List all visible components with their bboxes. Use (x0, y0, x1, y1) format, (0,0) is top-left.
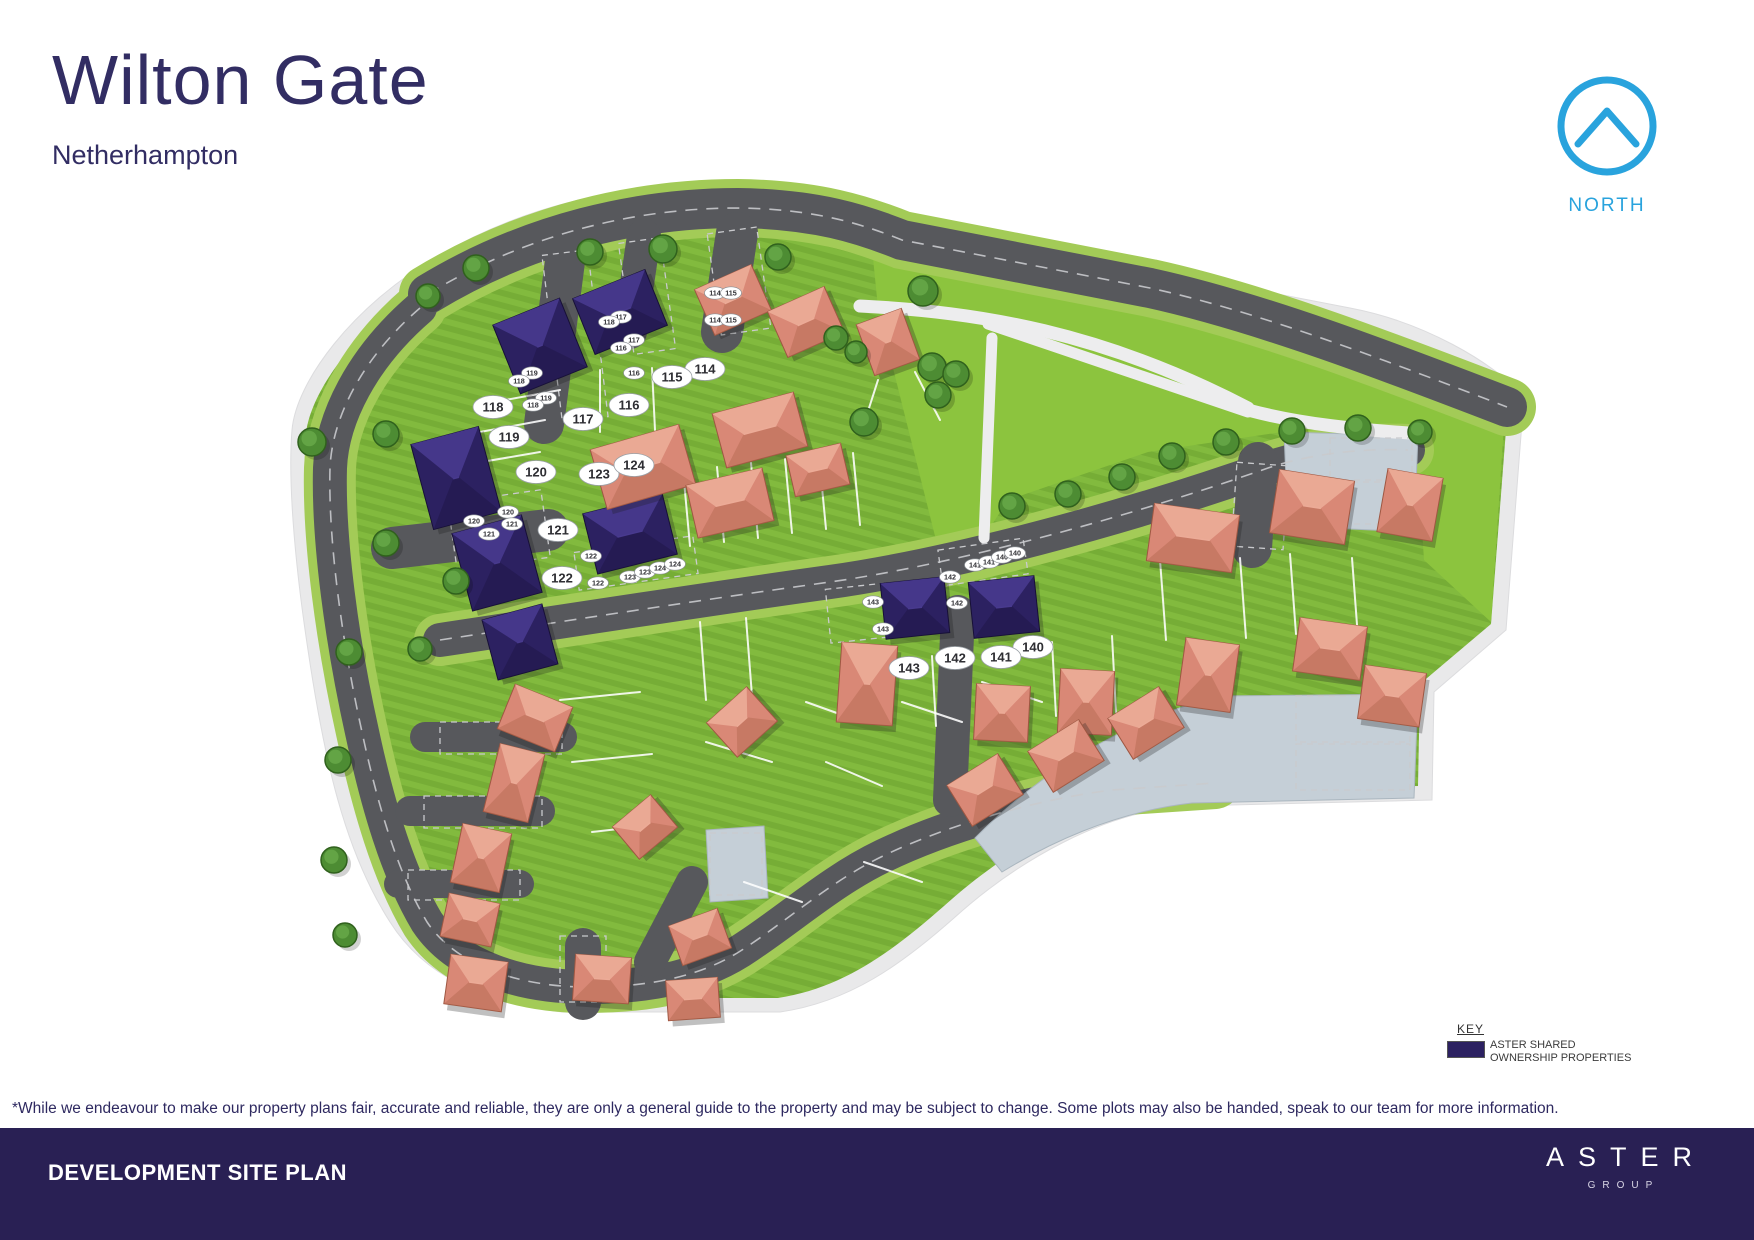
tree-canopy (768, 247, 782, 261)
bay-label-text: 119 (540, 394, 552, 403)
parking-bay-label: 118 (523, 399, 544, 411)
brand-name: ASTER (1533, 1142, 1709, 1173)
house-private (1176, 638, 1244, 719)
parking-bay-label: 143 (863, 596, 884, 608)
bay-label-text: 115 (725, 316, 737, 325)
tree-canopy (946, 364, 960, 378)
parking-bay-label: 140 (1005, 547, 1026, 559)
tree-canopy (1162, 446, 1176, 460)
tree-canopy (1112, 467, 1126, 481)
plot-label-text: 121 (547, 523, 569, 538)
block-paving-court (706, 826, 768, 902)
house-private (1357, 665, 1431, 734)
bay-label-text: 124 (669, 560, 681, 569)
house-roof (1407, 504, 1413, 505)
footer-title: DEVELOPMENT SITE PLAN (48, 1160, 347, 1186)
disclaimer-text: *While we endeavour to make our property… (12, 1100, 1752, 1118)
tree-canopy (411, 639, 424, 652)
tree-canopy (339, 642, 353, 656)
parking-bay-label: 121 (479, 528, 500, 540)
tree-icon (333, 923, 361, 951)
key-legend-line1: ASTER SHARED (1490, 1039, 1631, 1052)
tree-canopy (580, 242, 594, 256)
tree-canopy (912, 279, 929, 296)
plot-label: 120 (516, 461, 556, 484)
key-title: KEY (1457, 1022, 1747, 1036)
tree-canopy (328, 750, 342, 764)
parking-bay-label: 120 (464, 515, 485, 527)
parking-bay-label: 116 (611, 342, 632, 354)
header: Wilton Gate Netherhampton (52, 40, 429, 171)
aster-group-logo: ASTER GROUP (1533, 1142, 1709, 1191)
tree-canopy (1411, 422, 1424, 435)
plot-label-text: 118 (483, 400, 504, 415)
parking-bay-label: 122 (588, 577, 609, 589)
plot-label: 123 (579, 463, 619, 486)
house-private (973, 684, 1034, 749)
shared-ownership-swatch (1447, 1041, 1485, 1058)
parking-bay-label: 142 (940, 571, 961, 583)
plot-label-text: 117 (573, 412, 594, 427)
bay-label-text: 119 (526, 369, 538, 378)
tree-canopy (1348, 418, 1362, 432)
bay-label-text: 143 (867, 598, 879, 607)
bay-label-text: 121 (483, 530, 495, 539)
plot-label-text: 120 (525, 465, 547, 480)
tree-canopy (419, 286, 432, 299)
plot-label: 116 (609, 394, 649, 417)
tree-canopy (922, 356, 937, 371)
house-private (1146, 503, 1244, 579)
footer-bar: DEVELOPMENT SITE PLAN ASTER GROUP (0, 1128, 1754, 1240)
house-private (1376, 469, 1447, 548)
house-roof (1205, 675, 1211, 676)
plot-label-text: 142 (944, 651, 966, 666)
plot-label-text: 143 (898, 661, 920, 676)
plot-label: 122 (542, 567, 582, 590)
tree-icon (321, 847, 351, 877)
bay-label-text: 115 (725, 289, 737, 298)
parking-bay-label: 116 (624, 367, 645, 379)
plot-label-text: 124 (623, 458, 645, 473)
bay-label-text: 118 (603, 318, 615, 327)
key-legend-line2: OWNERSHIP PROPERTIES (1490, 1052, 1631, 1065)
page-title: Wilton Gate (52, 40, 429, 120)
tree-canopy (466, 258, 480, 272)
plot-label-text: 114 (695, 362, 717, 377)
plot-label-text: 140 (1022, 640, 1044, 655)
plot-label-text: 116 (619, 398, 640, 413)
bay-label-text: 124 (654, 564, 666, 573)
tree-canopy (653, 238, 668, 253)
plot-label: 115 (652, 366, 692, 389)
parking-bay-label: 120 (498, 506, 519, 518)
plot-label-text: 123 (588, 467, 610, 482)
tree-canopy (1216, 432, 1230, 446)
house-private (1292, 618, 1372, 687)
parking-bay-label: 115 (721, 287, 742, 299)
plot-label: 143 (889, 657, 929, 680)
house-private (666, 977, 725, 1027)
road (1252, 462, 1258, 548)
bay-label-text: 143 (877, 625, 889, 634)
north-label: NORTH (1552, 195, 1662, 217)
tree-canopy (336, 925, 349, 938)
plot-label: 118 (473, 396, 513, 419)
parking-bay-label: 143 (873, 623, 894, 635)
plot-label: 141 (981, 646, 1021, 669)
parking-bay-label: 122 (581, 550, 602, 562)
development-site-plan-page: 1141151141151171181171161161191181191181… (0, 0, 1754, 1240)
tree-canopy (302, 431, 317, 446)
tree-canopy (1282, 421, 1296, 435)
house-private (836, 642, 902, 732)
road (950, 612, 958, 800)
house-private (572, 954, 635, 1010)
bay-label-text: 122 (585, 552, 597, 561)
tree-canopy (324, 850, 338, 864)
bay-label-text: 142 (951, 599, 963, 608)
plot-label: 117 (563, 408, 603, 431)
bay-label-text: 123 (624, 573, 636, 582)
tree-canopy (854, 411, 869, 426)
tree-canopy (848, 343, 860, 355)
bay-label-text: 120 (502, 508, 514, 517)
map-key: KEY ASTER SHARED OWNERSHIP PROPERTIES (1447, 1022, 1747, 1064)
parking-bay-label: 121 (502, 518, 523, 530)
brand-subname: GROUP (1533, 1180, 1709, 1191)
key-legend-text: ASTER SHARED OWNERSHIP PROPERTIES (1490, 1039, 1631, 1064)
parking-bay-label: 142 (947, 597, 968, 609)
parking-bay-label: 124 (665, 558, 686, 570)
bay-label-text: 117 (628, 336, 640, 345)
bay-label-text: 116 (615, 344, 627, 353)
bay-label-text: 118 (527, 401, 539, 410)
bay-label-text: 118 (513, 377, 525, 386)
bay-label-text: 114 (709, 289, 721, 298)
parking-bay-label: 118 (509, 375, 530, 387)
bay-label-text: 122 (592, 579, 604, 588)
plot-label-text: 122 (551, 571, 573, 586)
bay-label-text: 120 (468, 517, 480, 526)
tree-canopy (1058, 484, 1072, 498)
house-shared-ownership (880, 576, 954, 645)
plot-label-text: 119 (499, 430, 520, 445)
tree-canopy (376, 424, 390, 438)
plot-label: 121 (538, 519, 578, 542)
house-shared-ownership (968, 575, 1044, 644)
bay-label-text: 140 (1009, 549, 1021, 558)
north-arrow-icon (1555, 74, 1659, 178)
parking-bay-label: 115 (721, 314, 742, 326)
plot-label: 124 (614, 454, 654, 477)
page-subtitle: Netherhampton (52, 140, 429, 171)
bay-label-text: 123 (639, 568, 651, 577)
plot-label-text: 141 (990, 650, 1012, 665)
plot-label: 142 (935, 647, 975, 670)
bay-label-text: 121 (506, 520, 518, 529)
tree-canopy (376, 533, 390, 547)
tree-canopy (446, 571, 460, 585)
tree-canopy (1002, 496, 1016, 510)
plot-label: 119 (489, 426, 529, 449)
house-private (1269, 469, 1359, 551)
north-indicator: NORTH (1552, 74, 1662, 217)
plot-label-text: 115 (662, 370, 683, 385)
bay-label-text: 142 (944, 573, 956, 582)
parking-bay-label: 118 (599, 316, 620, 328)
house-private (443, 954, 512, 1018)
tree-canopy (827, 328, 840, 341)
bay-label-text: 114 (709, 316, 721, 325)
bay-label-text: 116 (628, 369, 640, 378)
tree-canopy (928, 385, 942, 399)
